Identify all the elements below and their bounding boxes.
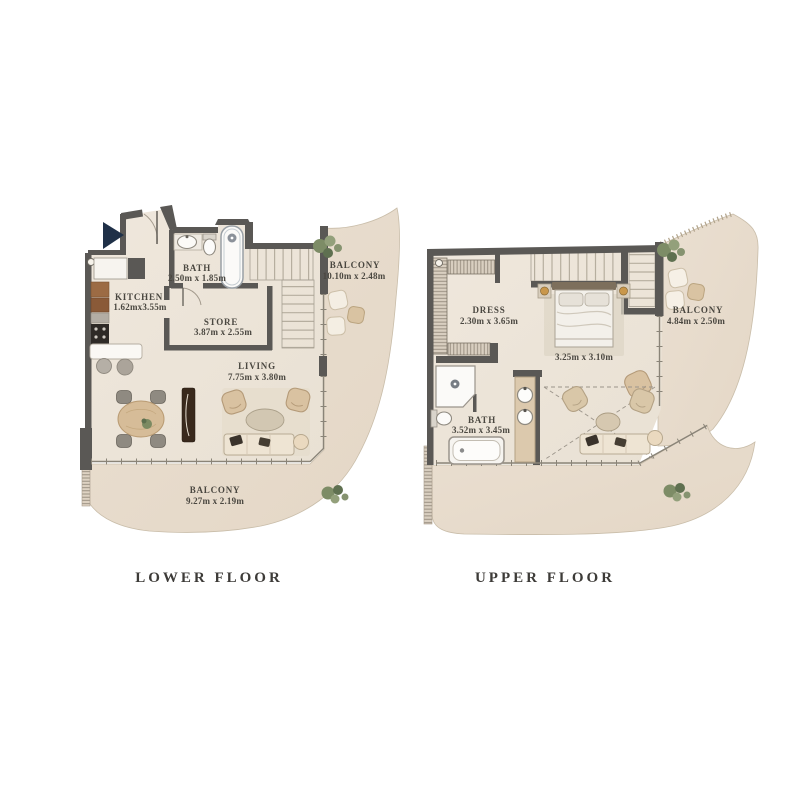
lower-floor-plan: BATH 2.50m x 1.85m KITCHEN 1.62mx3.55m S… [60,198,400,543]
bathtub-icon [449,437,504,464]
kitchen-dims: 1.62mx3.55m [113,302,166,312]
balcony-side-label: BALCONY [330,260,381,270]
upper-floor-title: UPPER FLOOR [475,570,615,587]
bath-label: BATH [468,415,496,425]
store-label: STORE [204,317,238,327]
dress-dims: 2.30m x 3.65m [460,316,518,326]
console-icon [182,388,195,442]
balcony-label: BALCONY [673,305,724,315]
vanity-icon [515,377,535,462]
bar-stool-icon [97,359,112,374]
living-dims: 7.75m x 3.80m [228,372,286,382]
upper-floor-plan: DRESS 2.30m x 3.65m 3.25m x 3.10m BATH 3… [418,198,770,543]
bedroom-dims: 3.25m x 3.10m [555,352,613,362]
balcony-bottom-label: BALCONY [190,485,241,495]
bath-dims: 3.52m x 3.45m [452,425,510,435]
column-marker [88,259,95,266]
sofa-icon [580,434,650,454]
store-dims: 3.87m x 2.55m [194,327,252,337]
coffee-table-icon [246,409,284,431]
balcony-dims: 4.84m x 2.50m [667,316,725,326]
shower-icon [436,366,475,407]
dress-label: DRESS [472,305,505,315]
balcony-bottom-dims: 9.27m x 2.19m [186,496,244,506]
outdoor-cushion-icon [347,306,366,325]
terrace-edge-hatch [82,466,90,506]
side-table-icon [294,435,309,450]
lower-floor-title: LOWER FLOOR [135,570,283,587]
column-marker [436,260,443,267]
bath-dims: 2.50m x 1.85m [168,273,226,283]
bath-label: BATH [183,263,211,273]
outdoor-cushion-icon [326,316,345,335]
balcony-side-dims: 10.10m x 2.48m [323,271,386,281]
kitchen-label: KITCHEN [115,292,163,302]
plant-icon [322,485,349,504]
toilet-icon [203,234,216,255]
bar-stool-icon [117,359,133,375]
island-counter-icon [90,344,142,359]
outdoor-cushion-icon [327,289,348,310]
side-table-icon [648,431,663,446]
floorplan-canvas: BATH 2.50m x 1.85m KITCHEN 1.62mx3.55m S… [0,0,800,800]
outdoor-cushion-icon [687,283,706,302]
coffee-table-icon [596,413,620,431]
sofa-icon [224,434,294,455]
living-label: LIVING [238,361,276,371]
sink-icon [174,234,202,250]
outdoor-cushion-icon [667,267,688,288]
